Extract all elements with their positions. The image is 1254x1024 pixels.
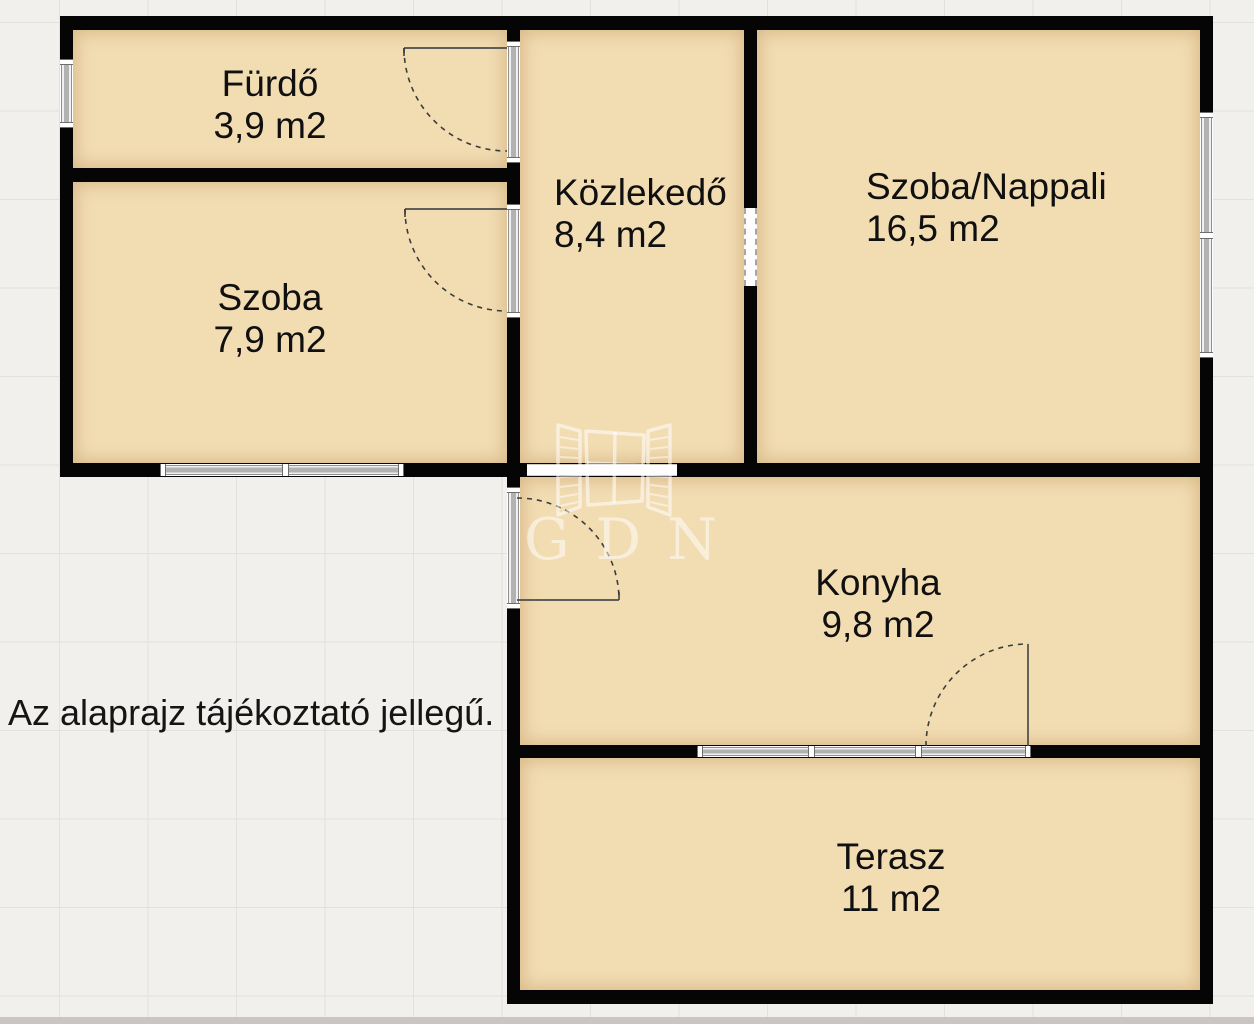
door-frame-szoba	[507, 205, 520, 317]
wall-outer-top	[60, 16, 1213, 30]
room-name: Terasz	[791, 836, 991, 878]
room-area-text: 7,9 m2	[170, 319, 370, 361]
room-label-kozlekedo: Közlekedő 8,4 m2	[554, 172, 727, 256]
watermark-text: GDN	[524, 514, 743, 566]
floor-plan-canvas: GDN Fürdő 3,9 m2 Szoba 7,9 m2 Közlekedő …	[0, 0, 1254, 1024]
doorway-hall-konyha	[527, 464, 677, 476]
room-label-szoba: Szoba 7,9 m2	[170, 277, 370, 361]
room-name: Szoba	[170, 277, 370, 319]
window-furdo-left	[60, 60, 73, 127]
room-name: Fürdő	[170, 63, 370, 105]
window-divider	[282, 464, 289, 476]
room-area-text: 16,5 m2	[866, 208, 1107, 250]
room-label-terasz: Terasz 11 m2	[791, 836, 991, 920]
room-name: Közlekedő	[554, 172, 727, 214]
window-divider	[808, 746, 815, 757]
window-terasz-door-assembly	[698, 746, 1030, 757]
doorway-hall-nappali	[744, 208, 757, 286]
window-divider	[915, 746, 922, 757]
room-area-text: 3,9 m2	[170, 105, 370, 147]
wall-outer-right-lower	[1200, 463, 1213, 1004]
room-area-text: 11 m2	[791, 878, 991, 920]
room-label-furdo: Fürdő 3,9 m2	[170, 63, 370, 147]
room-label-nappali: Szoba/Nappali 16,5 m2	[866, 166, 1107, 250]
door-frame-furdo	[507, 42, 520, 162]
room-name: Konyha	[778, 562, 978, 604]
wall-outer-bottom	[507, 990, 1213, 1004]
room-name: Szoba/Nappali	[866, 166, 1107, 208]
room-area-text: 8,4 m2	[554, 214, 727, 256]
disclaimer-text: Az alaprajz tájékoztató jellegű.	[8, 692, 494, 734]
window-divider	[1200, 232, 1213, 239]
wall-furdo-szoba	[60, 168, 519, 182]
bottom-edge-strip	[0, 1017, 1254, 1024]
room-label-konyha: Konyha 9,8 m2	[778, 562, 978, 646]
room-area-text: 9,8 m2	[778, 604, 978, 646]
door-frame-konyha	[507, 488, 520, 608]
